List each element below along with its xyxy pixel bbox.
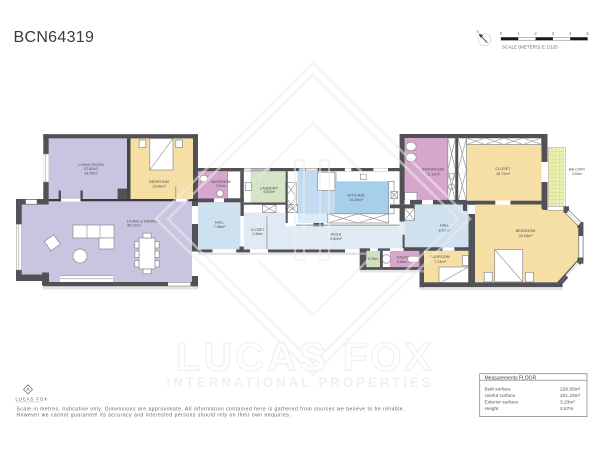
svg-text:HALL: HALL xyxy=(440,224,450,228)
svg-text:KITCHEN: KITCHEN xyxy=(348,193,365,197)
svg-text:3.23m²: 3.23m² xyxy=(560,400,575,406)
svg-text:BCN64319: BCN64319 xyxy=(14,29,95,46)
svg-text:16.25m²: 16.25m² xyxy=(84,171,99,175)
svg-text:9.80m²: 9.80m² xyxy=(330,237,343,241)
svg-text:CLOSET: CLOSET xyxy=(495,167,511,171)
svg-text:Height: Height xyxy=(485,406,500,412)
svg-text:BATHROOM: BATHROOM xyxy=(422,168,444,172)
svg-text:18.72m²: 18.72m² xyxy=(496,172,511,176)
svg-text:AISLE: AISLE xyxy=(331,233,342,237)
svg-text:LUCAS FOX: LUCAS FOX xyxy=(16,397,48,402)
svg-text:Built surface: Built surface xyxy=(485,387,512,393)
svg-text:Useful surface: Useful surface xyxy=(485,393,516,399)
svg-text:229.55m²: 229.55m² xyxy=(560,387,581,393)
svg-text:0.76m²: 0.76m² xyxy=(368,257,379,261)
svg-text:INTERNATIONAL PROPERTIES: INTERNATIONAL PROPERTIES xyxy=(167,375,434,390)
svg-text:201.23m²: 201.23m² xyxy=(560,393,581,399)
svg-text:7.38m²: 7.38m² xyxy=(214,225,227,229)
svg-text:3.23m²: 3.23m² xyxy=(572,172,583,176)
svg-text:7.24m²: 7.24m² xyxy=(434,260,447,264)
svg-text:3.91m²: 3.91m² xyxy=(216,184,227,188)
svg-text:STUDIO: STUDIO xyxy=(84,167,98,171)
svg-text:28.18m²: 28.18m² xyxy=(519,234,534,238)
svg-text:N: N xyxy=(477,30,480,34)
svg-text:LUCAS FOX: LUCAS FOX xyxy=(176,336,434,380)
svg-text:19.28m²: 19.28m² xyxy=(349,198,364,202)
svg-text:Scale in metres. Indicative on: Scale in metres. Indicative only. Dimens… xyxy=(17,407,405,413)
svg-text:BEDROOM: BEDROOM xyxy=(516,229,536,233)
svg-text:2.46m²: 2.46m² xyxy=(397,260,408,264)
svg-text:2.46m²: 2.46m² xyxy=(252,232,263,236)
svg-text:However we cannot guarantee it: However we cannot guarantee its accuracy… xyxy=(17,413,292,419)
svg-text:LIVING & DINING: LIVING & DINING xyxy=(127,219,157,223)
svg-text:4.62m²: 4.62m² xyxy=(263,190,276,194)
svg-text:2.87m: 2.87m xyxy=(560,406,573,412)
svg-text:Measurements FLOOR: Measurements FLOOR xyxy=(485,375,537,381)
svg-text:46.22m²: 46.22m² xyxy=(127,224,142,228)
svg-text:Exterior surface: Exterior surface xyxy=(485,400,519,406)
svg-text:BALCONY: BALCONY xyxy=(569,168,586,172)
svg-text:SCALE (METERS) E 1/125: SCALE (METERS) E 1/125 xyxy=(502,45,558,50)
svg-text:HALL: HALL xyxy=(215,221,225,225)
svg-text:13.88m²: 13.88m² xyxy=(152,184,167,188)
svg-text:TOILET: TOILET xyxy=(396,256,408,260)
